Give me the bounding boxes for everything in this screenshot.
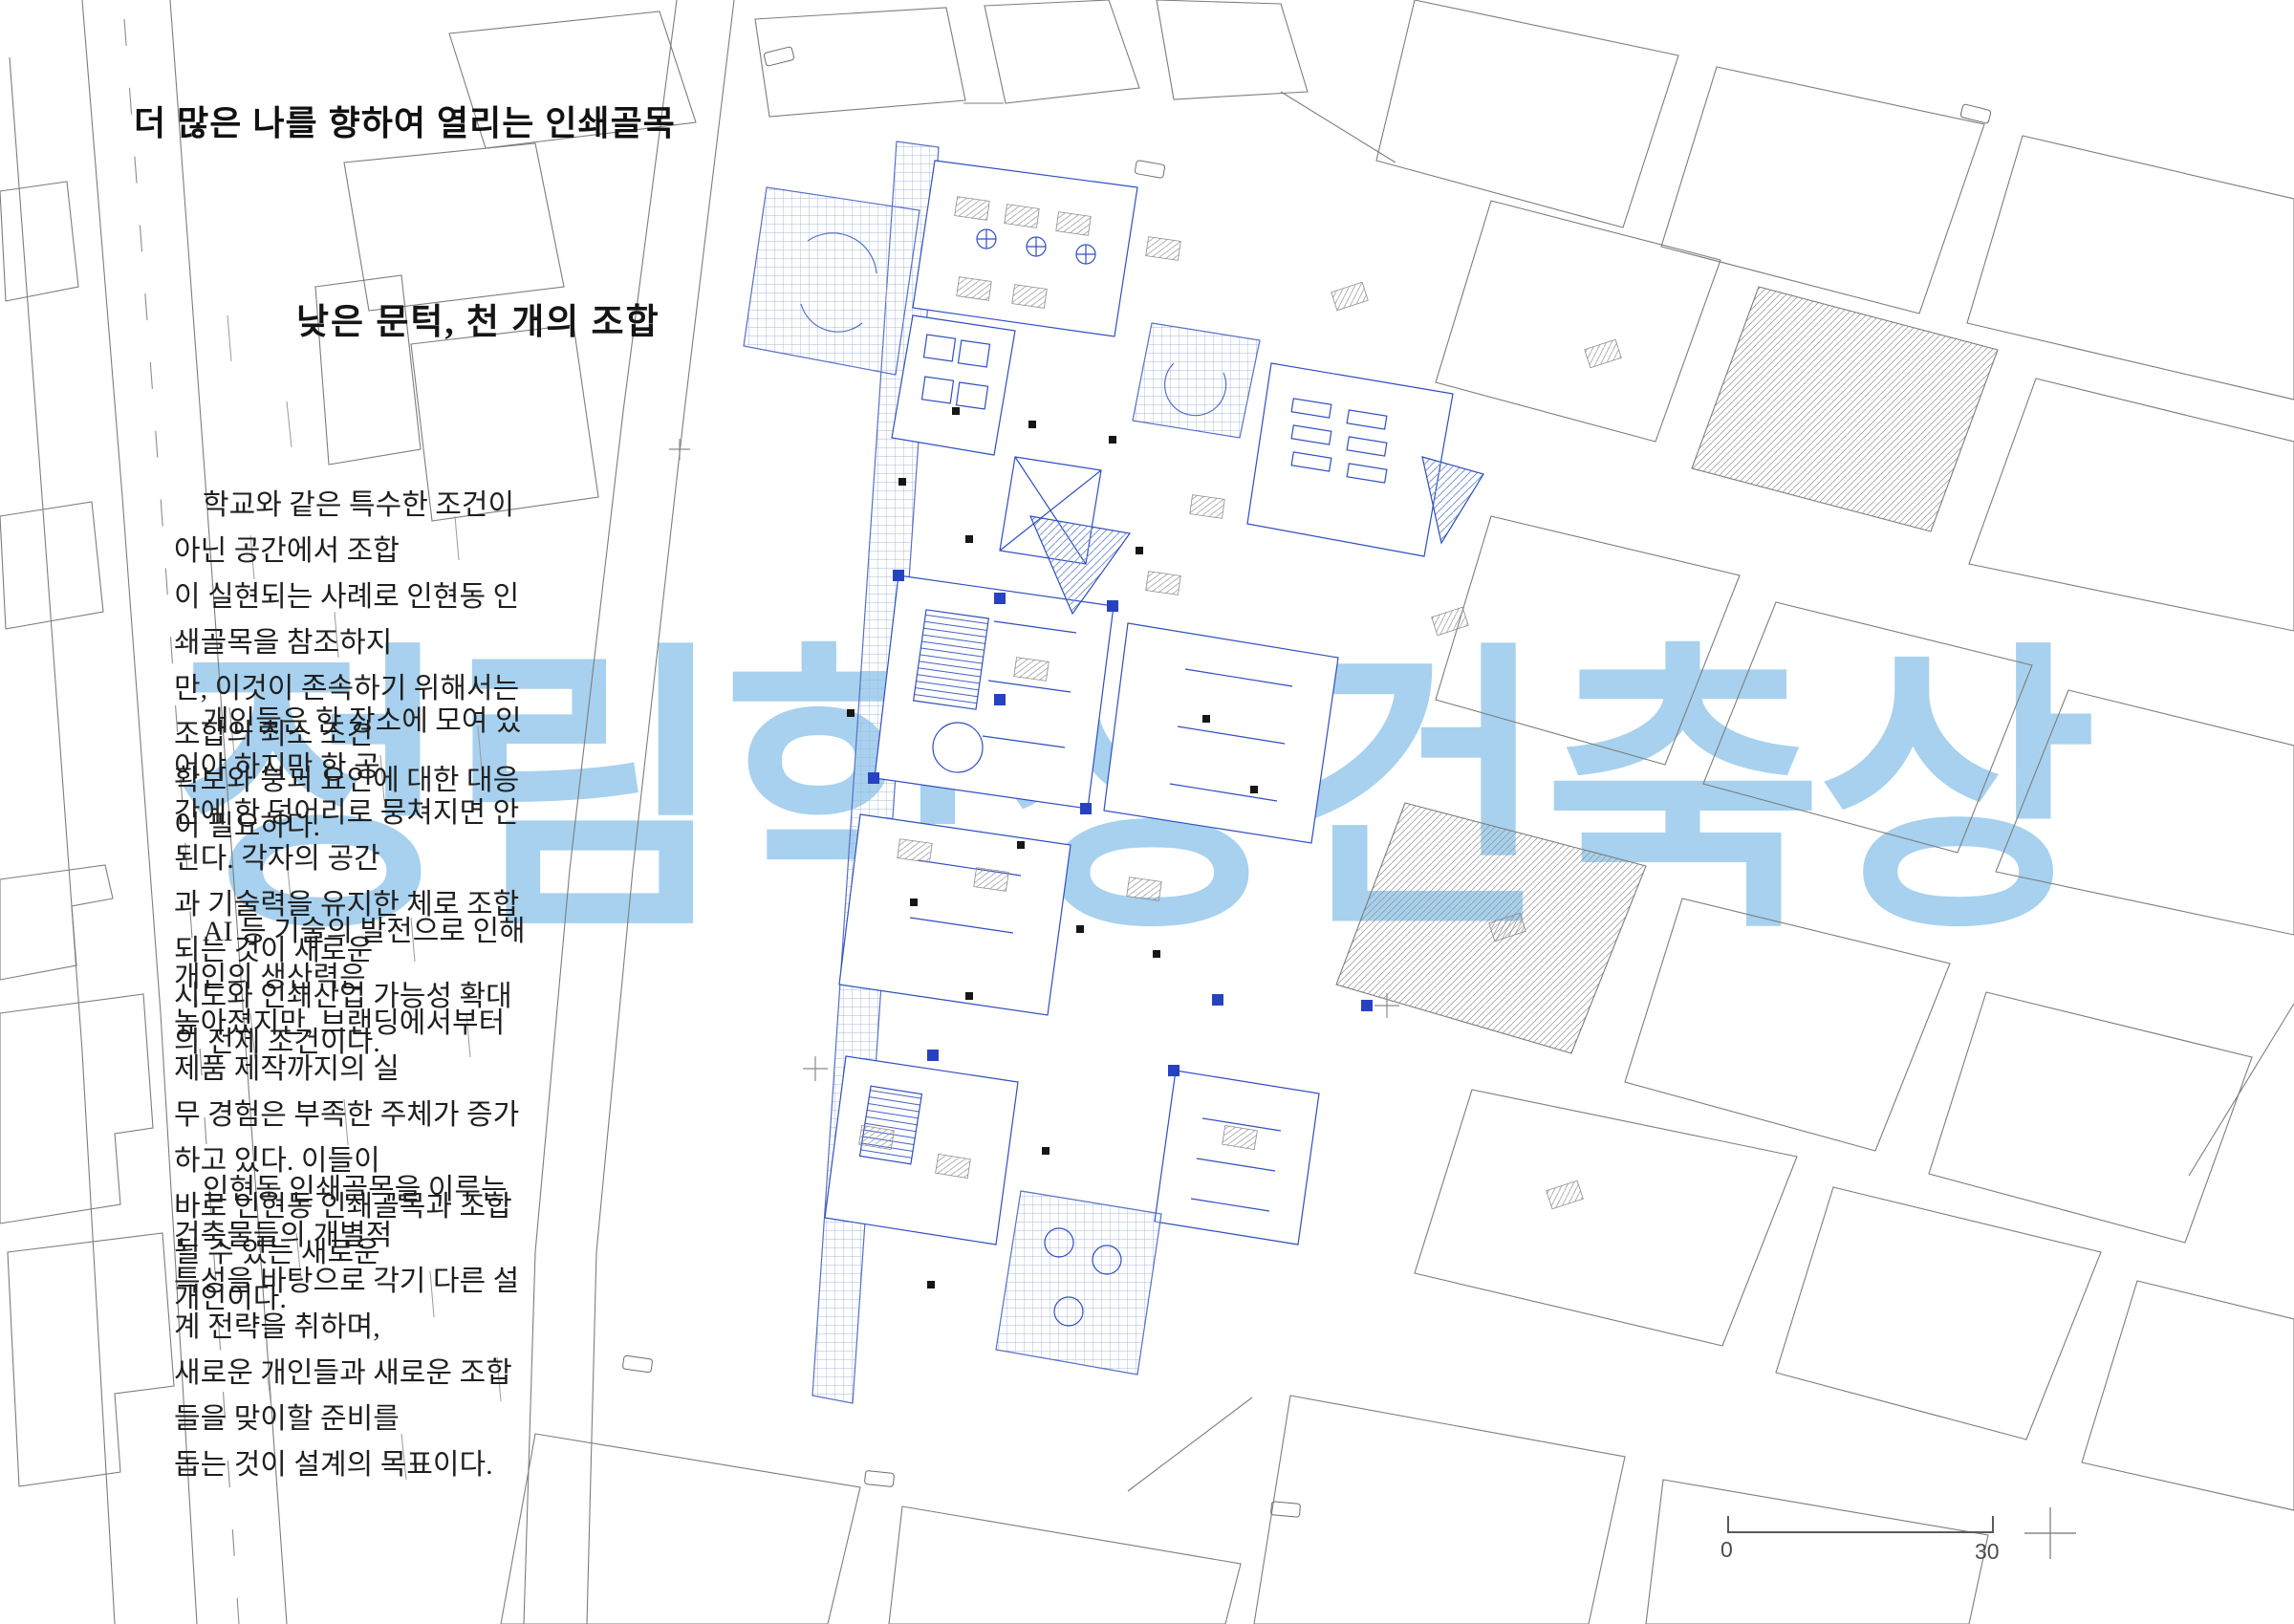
site-buildings <box>744 141 1483 1403</box>
scale-zero-label: 0 <box>1720 1537 1733 1563</box>
scale-thirty-label: 30 <box>1975 1539 2000 1565</box>
bottom-plaza <box>996 1191 1161 1375</box>
road-tick-marks <box>227 315 501 1480</box>
site-plan-drawing <box>0 0 2294 1624</box>
crosshair-mark <box>2024 1507 2076 1559</box>
top-plaza <box>744 187 920 375</box>
scale-bar <box>1728 1516 1993 1532</box>
